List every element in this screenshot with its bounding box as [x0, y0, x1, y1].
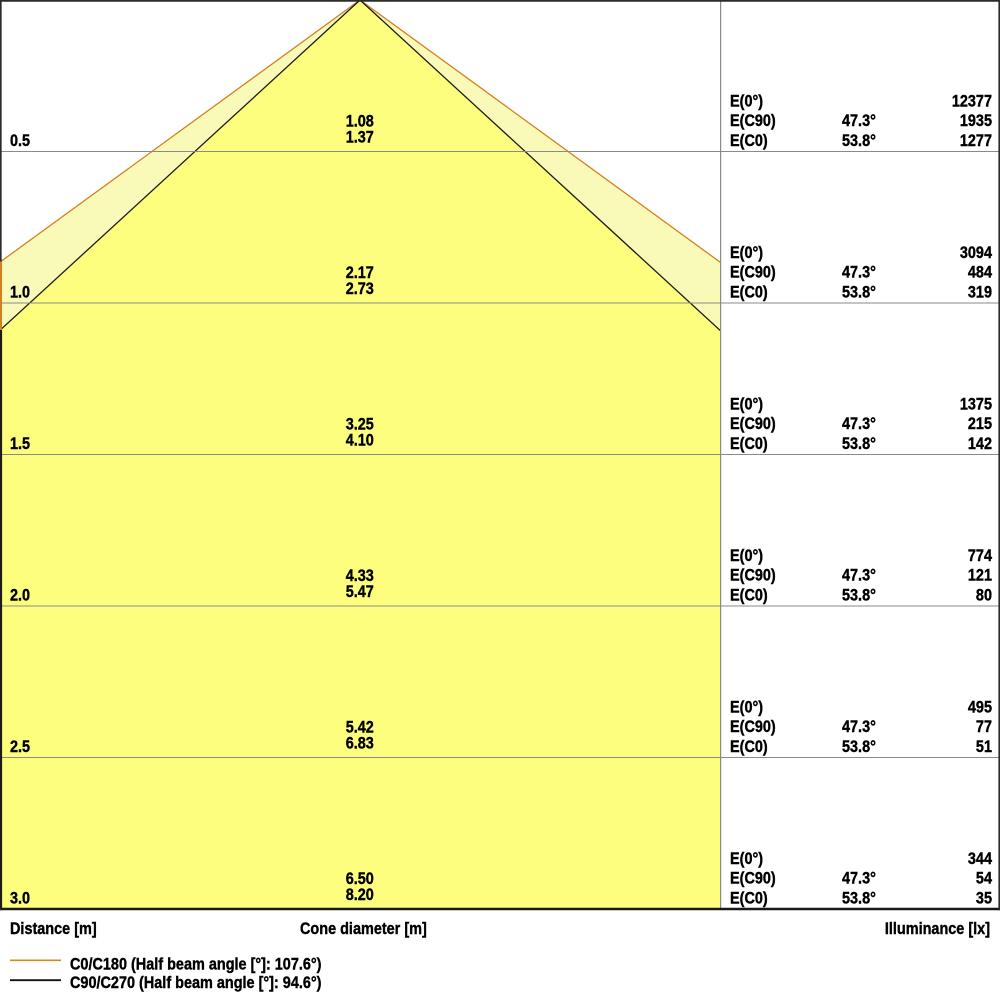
svg-text:215: 215 [968, 415, 992, 433]
svg-text:E(0°): E(0°) [730, 244, 763, 262]
svg-text:53.8°: 53.8° [842, 283, 876, 301]
svg-text:E(C0): E(C0) [730, 586, 768, 604]
svg-text:E(C0): E(C0) [730, 132, 768, 150]
svg-text:Illuminance [lx]: Illuminance [lx] [885, 920, 990, 938]
svg-text:E(0°): E(0°) [730, 93, 763, 111]
svg-text:495: 495 [968, 699, 992, 717]
svg-text:47.3°: 47.3° [842, 718, 876, 736]
svg-text:2.5: 2.5 [10, 738, 30, 756]
svg-text:3.0: 3.0 [10, 889, 30, 907]
svg-text:E(C0): E(C0) [730, 283, 768, 301]
svg-text:2.73: 2.73 [346, 280, 374, 298]
svg-text:35: 35 [976, 889, 992, 907]
svg-text:47.3°: 47.3° [842, 415, 876, 433]
svg-text:1.5: 1.5 [10, 435, 30, 453]
svg-text:4.10: 4.10 [346, 431, 374, 449]
svg-text:1935: 1935 [960, 112, 992, 130]
svg-text:0.5: 0.5 [10, 132, 30, 150]
svg-text:53.8°: 53.8° [842, 435, 876, 453]
svg-text:121: 121 [968, 567, 992, 585]
svg-text:54: 54 [976, 870, 992, 888]
svg-text:E(C90): E(C90) [730, 415, 776, 433]
svg-text:8.20: 8.20 [346, 886, 374, 904]
svg-text:51: 51 [976, 738, 992, 756]
svg-text:E(C90): E(C90) [730, 112, 776, 130]
svg-text:47.3°: 47.3° [842, 112, 876, 130]
svg-text:53.8°: 53.8° [842, 586, 876, 604]
svg-text:E(0°): E(0°) [730, 547, 763, 565]
svg-text:47.3°: 47.3° [842, 264, 876, 282]
svg-text:53.8°: 53.8° [842, 889, 876, 907]
svg-text:80: 80 [976, 586, 992, 604]
svg-text:484: 484 [968, 264, 992, 282]
svg-text:1375: 1375 [960, 396, 992, 414]
svg-text:E(C90): E(C90) [730, 264, 776, 282]
svg-text:1277: 1277 [960, 132, 992, 150]
svg-text:E(C90): E(C90) [730, 870, 776, 888]
svg-text:12377: 12377 [952, 93, 992, 111]
svg-text:344: 344 [968, 850, 992, 868]
svg-text:47.3°: 47.3° [842, 567, 876, 585]
svg-text:E(C0): E(C0) [730, 435, 768, 453]
svg-text:2.0: 2.0 [10, 586, 30, 604]
svg-text:E(C0): E(C0) [730, 889, 768, 907]
svg-text:6.83: 6.83 [346, 734, 374, 752]
svg-text:Distance [m]: Distance [m] [10, 920, 97, 938]
svg-text:1.0: 1.0 [10, 283, 30, 301]
svg-text:E(0°): E(0°) [730, 699, 763, 717]
svg-text:E(C0): E(C0) [730, 738, 768, 756]
svg-text:1.37: 1.37 [346, 128, 374, 146]
svg-text:C90/C270 (Half beam angle [°]:: C90/C270 (Half beam angle [°]: 94.6°) [70, 974, 322, 992]
svg-text:E(C90): E(C90) [730, 567, 776, 585]
svg-text:142: 142 [968, 435, 992, 453]
svg-text:C0/C180 (Half beam angle [°]:: C0/C180 (Half beam angle [°]: 107.6°) [70, 955, 322, 973]
svg-text:53.8°: 53.8° [842, 132, 876, 150]
svg-text:5.47: 5.47 [346, 583, 374, 601]
svg-text:77: 77 [976, 718, 992, 736]
svg-text:E(0°): E(0°) [730, 850, 763, 868]
svg-text:53.8°: 53.8° [842, 738, 876, 756]
svg-text:E(0°): E(0°) [730, 396, 763, 414]
svg-text:319: 319 [968, 283, 992, 301]
svg-text:3094: 3094 [960, 244, 992, 262]
svg-text:E(C90): E(C90) [730, 718, 776, 736]
svg-text:774: 774 [968, 547, 992, 565]
svg-text:Cone diameter [m]: Cone diameter [m] [300, 920, 427, 938]
svg-text:47.3°: 47.3° [842, 870, 876, 888]
